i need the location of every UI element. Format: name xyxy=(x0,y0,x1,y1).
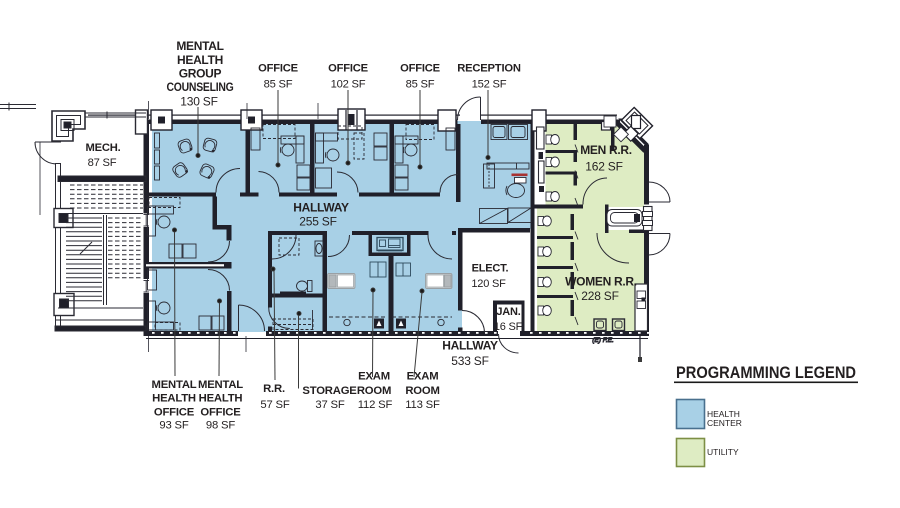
svg-text:255 SF: 255 SF xyxy=(299,215,337,229)
svg-text:OFFICE: OFFICE xyxy=(328,63,369,75)
svg-text:113 SF: 113 SF xyxy=(405,399,440,411)
svg-text:MEN R.R.: MEN R.R. xyxy=(580,143,632,157)
svg-text:85 SF: 85 SF xyxy=(406,79,435,91)
svg-text:MENTAL: MENTAL xyxy=(176,39,223,53)
svg-text:CENTER: CENTER xyxy=(707,418,742,428)
svg-text:OFFICE: OFFICE xyxy=(258,63,299,75)
svg-text:57 SF: 57 SF xyxy=(260,399,289,411)
svg-text:85 SF: 85 SF xyxy=(264,79,293,91)
svg-text:PROGRAMMING LEGEND: PROGRAMMING LEGEND xyxy=(676,364,856,382)
svg-text:228 SF: 228 SF xyxy=(581,289,619,303)
svg-text:STORAGE: STORAGE xyxy=(302,385,357,397)
svg-text:533 SF: 533 SF xyxy=(451,354,489,368)
svg-text:120 SF: 120 SF xyxy=(471,278,506,290)
svg-text:OFFICE: OFFICE xyxy=(154,407,195,419)
svg-text:152 SF: 152 SF xyxy=(472,79,507,91)
svg-text:98 SF: 98 SF xyxy=(206,420,235,432)
svg-text:ROOM: ROOM xyxy=(357,385,391,397)
svg-text:HEALTH: HEALTH xyxy=(199,393,243,405)
svg-text:HALLWAY: HALLWAY xyxy=(293,201,349,215)
svg-text:OFFICE: OFFICE xyxy=(200,407,241,419)
svg-text:162 SF: 162 SF xyxy=(585,160,623,174)
svg-text:MENTAL: MENTAL xyxy=(151,379,196,391)
svg-text:WOMEN R.R.: WOMEN R.R. xyxy=(565,275,637,289)
svg-text:16 SF: 16 SF xyxy=(494,321,523,333)
svg-text:COUNSELING: COUNSELING xyxy=(167,80,234,94)
svg-text:HEALTH: HEALTH xyxy=(152,393,196,405)
svg-text:37 SF: 37 SF xyxy=(315,399,344,411)
svg-text:112 SF: 112 SF xyxy=(358,399,393,411)
svg-text:EXAM: EXAM xyxy=(358,371,390,383)
svg-text:130 SF: 130 SF xyxy=(180,95,218,109)
svg-text:MECH.: MECH. xyxy=(85,142,120,154)
svg-text:EXAM: EXAM xyxy=(407,371,439,383)
svg-text:UTILITY: UTILITY xyxy=(707,447,739,457)
svg-text:JAN.: JAN. xyxy=(496,306,520,318)
svg-text:93 SF: 93 SF xyxy=(159,420,188,432)
svg-text:ROOM: ROOM xyxy=(405,385,439,397)
svg-text:GROUP: GROUP xyxy=(179,67,222,81)
svg-text:R.R.: R.R. xyxy=(263,383,285,395)
svg-text:HEALTH: HEALTH xyxy=(177,53,223,67)
svg-text:HALLWAY: HALLWAY xyxy=(442,339,498,353)
svg-text:87 SF: 87 SF xyxy=(88,157,117,169)
svg-text:RECEPTION: RECEPTION xyxy=(457,63,521,75)
svg-text:OFFICE: OFFICE xyxy=(400,63,441,75)
svg-text:102 SF: 102 SF xyxy=(331,79,366,91)
svg-text:(E) F.E.: (E) F.E. xyxy=(592,337,614,344)
svg-text:MENTAL: MENTAL xyxy=(198,379,243,391)
svg-text:ELECT.: ELECT. xyxy=(472,263,509,275)
